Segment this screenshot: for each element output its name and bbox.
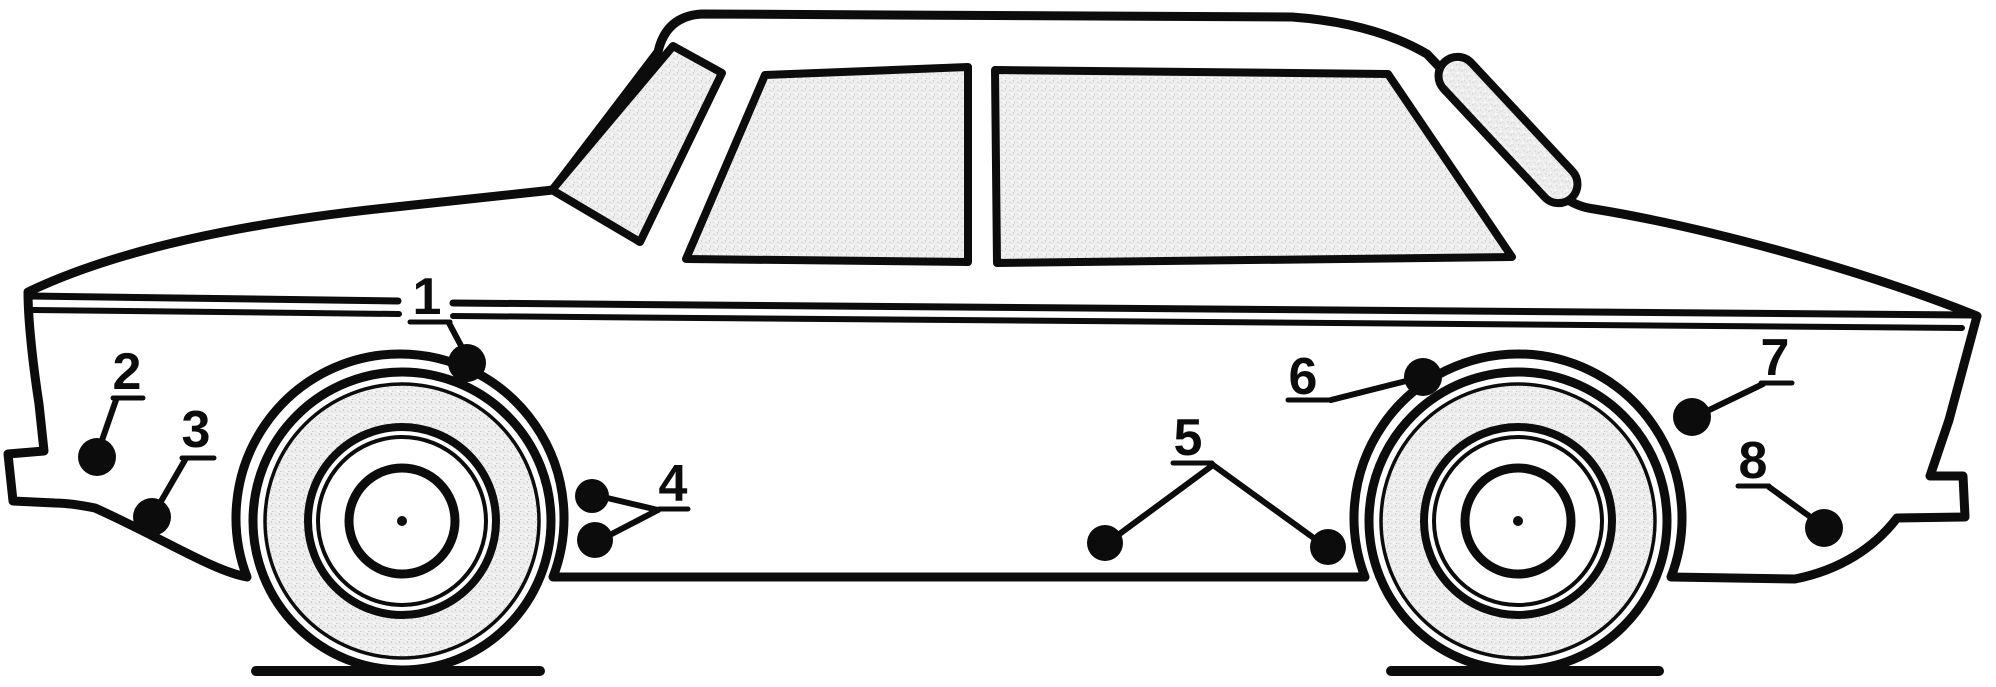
callout-number: 1 <box>413 268 442 326</box>
callout-number: 8 <box>1739 432 1768 490</box>
callout-number: 5 <box>1174 409 1203 467</box>
callout-number: 7 <box>1761 329 1790 387</box>
treatment-point-dot <box>1673 398 1711 436</box>
callout-number: 4 <box>659 455 688 513</box>
callout-number: 2 <box>113 343 142 401</box>
treatment-point-dot <box>1310 529 1346 565</box>
treatment-point-dot <box>577 522 613 558</box>
front-wheel <box>253 372 551 670</box>
treatment-point-dot <box>133 498 171 536</box>
treatment-point-dot <box>575 479 609 513</box>
treatment-point-dot <box>78 438 116 476</box>
callout-number: 6 <box>1289 348 1318 406</box>
car-rustproofing-points-diagram: 12345678 <box>0 0 1996 687</box>
treatment-point-dot <box>1805 509 1843 547</box>
diagram-page: 12345678 <box>0 0 1996 687</box>
treatment-point-dot <box>1087 525 1123 561</box>
treatment-point-dot <box>448 344 486 382</box>
callout-number: 3 <box>182 401 211 459</box>
treatment-point-dot <box>1404 358 1442 396</box>
rear-wheel <box>1369 372 1667 670</box>
